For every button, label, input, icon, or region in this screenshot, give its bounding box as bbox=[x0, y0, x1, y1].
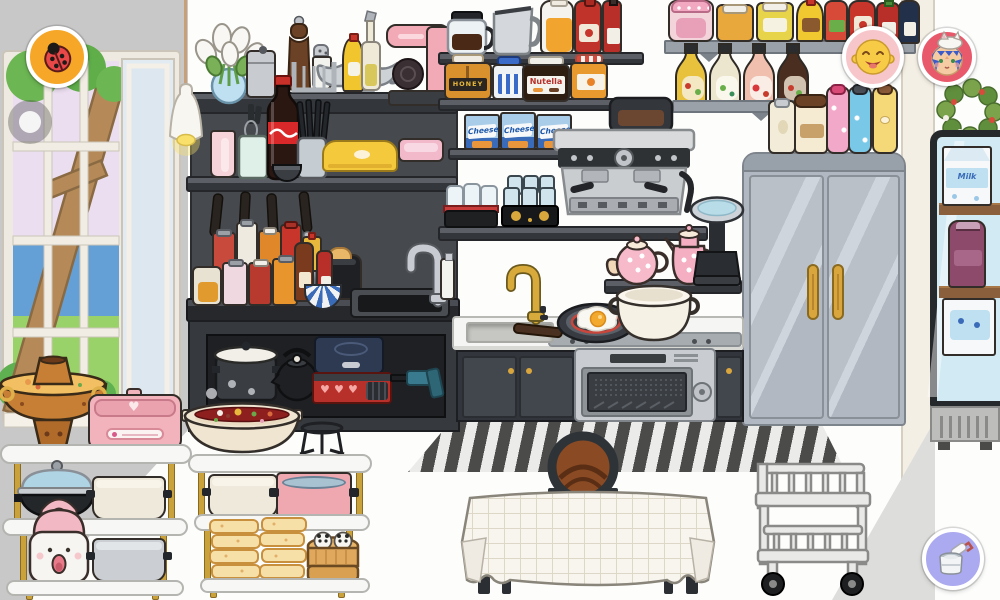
fridge-top-band bbox=[744, 154, 904, 172]
soap-pump[interactable] bbox=[440, 258, 455, 300]
vinegar-label bbox=[829, 20, 845, 32]
ketchup-label bbox=[579, 24, 599, 42]
honey-dipper bbox=[466, 66, 469, 78]
milk-carton[interactable]: Milk bbox=[942, 146, 992, 206]
ladybug-button[interactable] bbox=[26, 26, 88, 88]
carton2-dot bbox=[958, 318, 964, 324]
cream-thermos[interactable] bbox=[768, 100, 796, 154]
kitchen-scale[interactable] bbox=[690, 194, 744, 288]
honey-pot[interactable] bbox=[716, 4, 754, 42]
handle-groove bbox=[837, 274, 839, 310]
pink-jam-jar[interactable] bbox=[668, 0, 714, 42]
tumbler-lid bbox=[794, 94, 828, 108]
slider-line bbox=[122, 434, 158, 436]
kitchen-scene: Milk bbox=[0, 0, 1000, 600]
pot-water bbox=[282, 476, 346, 489]
pot-handle bbox=[163, 490, 172, 498]
caster-wheel bbox=[762, 573, 863, 595]
heart-icon: ♥ bbox=[348, 384, 358, 395]
oj-juice bbox=[546, 18, 572, 52]
rice-cooker[interactable] bbox=[24, 502, 94, 586]
carton-gable bbox=[944, 148, 990, 161]
espresso-machine[interactable] bbox=[548, 96, 700, 228]
lamp-cord bbox=[184, 0, 187, 86]
pink-multicooker[interactable]: ♥ bbox=[88, 394, 182, 450]
stock-pot[interactable] bbox=[212, 340, 280, 402]
milk-carton-2[interactable] bbox=[942, 298, 996, 356]
torch-handle bbox=[425, 367, 445, 399]
oil-jug[interactable] bbox=[192, 266, 222, 306]
egg-yolk bbox=[591, 312, 606, 327]
milk-label: Milk bbox=[946, 168, 988, 181]
butter-dish-yellow[interactable] bbox=[322, 140, 398, 172]
wire-stand[interactable] bbox=[298, 422, 346, 458]
honey-label: HONEY bbox=[449, 78, 487, 88]
hopper-window bbox=[618, 110, 664, 126]
pot-rim bbox=[96, 542, 162, 550]
kitchen-torch[interactable] bbox=[390, 366, 448, 400]
shelf-board bbox=[188, 454, 372, 473]
juice-cap bbox=[956, 222, 980, 231]
shelf-board bbox=[0, 444, 192, 464]
stove-side-vent bbox=[366, 382, 388, 400]
jug-contents bbox=[198, 282, 218, 302]
door-knob-gold bbox=[726, 368, 732, 374]
stove-top-strip bbox=[314, 374, 390, 381]
fridge-handle-left[interactable] bbox=[807, 264, 819, 320]
mustard-label bbox=[802, 18, 820, 32]
nutella-label-text: Nutella bbox=[527, 76, 565, 86]
cream-pot-2[interactable] bbox=[208, 474, 278, 518]
double-door-fridge[interactable] bbox=[742, 152, 906, 426]
cracker-art bbox=[472, 141, 492, 148]
pot-rim bbox=[212, 478, 274, 486]
bread-stack-2[interactable] bbox=[260, 518, 308, 584]
marmalade-jar[interactable] bbox=[570, 54, 608, 100]
carton-band: Milk bbox=[946, 168, 988, 188]
canister-lid-line bbox=[248, 62, 274, 64]
spice-jar[interactable] bbox=[222, 262, 248, 306]
dish-dot bbox=[354, 150, 370, 159]
honey-pot-lid bbox=[722, 4, 748, 14]
blue-bottle[interactable] bbox=[848, 86, 872, 154]
jar-lid bbox=[240, 219, 254, 227]
blue-hair-cat-hat-face-icon bbox=[925, 35, 969, 79]
oj-cap bbox=[550, 0, 568, 7]
paint-bucket-roller-icon bbox=[933, 539, 973, 579]
hot-sauce-bottle[interactable] bbox=[602, 0, 622, 54]
coffee-maker-carafe bbox=[392, 58, 424, 90]
soy-label bbox=[904, 22, 916, 36]
pink-bottle[interactable] bbox=[826, 86, 850, 154]
burner-dot bbox=[706, 339, 711, 344]
heart-icon: ♥ bbox=[334, 384, 344, 395]
jar-lid bbox=[228, 259, 244, 267]
carton2-art bbox=[950, 310, 990, 340]
cooler-foot bbox=[980, 442, 992, 450]
tumbler-band bbox=[800, 124, 824, 138]
grape-juice-bottle[interactable] bbox=[948, 220, 986, 288]
serving-cart[interactable] bbox=[748, 460, 878, 600]
vinegar-bottle[interactable] bbox=[824, 0, 848, 42]
hot-sauce-label bbox=[607, 28, 620, 44]
dining-table[interactable] bbox=[456, 468, 722, 600]
bread-stack-1[interactable] bbox=[208, 520, 262, 584]
hot-sauce-cap bbox=[609, 0, 618, 6]
fridge-handle-right[interactable] bbox=[832, 264, 844, 320]
multicooker-slider[interactable] bbox=[106, 428, 164, 440]
honey-label-band: HONEY bbox=[449, 78, 487, 91]
pump-top bbox=[445, 253, 453, 261]
cat-hat bbox=[938, 32, 962, 49]
carton2-dot bbox=[974, 322, 980, 328]
cheese-label: Cheese bbox=[468, 124, 496, 136]
cheese-banner: Cheese bbox=[468, 124, 496, 139]
canister-knob bbox=[259, 46, 267, 54]
cracker-art bbox=[508, 141, 528, 148]
bamboo-steamer-pandas[interactable] bbox=[306, 534, 360, 584]
cabinet-door[interactable] bbox=[716, 356, 742, 418]
juice-label bbox=[954, 250, 982, 266]
marmalade-body bbox=[570, 62, 608, 100]
arm-stripe bbox=[398, 34, 424, 39]
pink-cup[interactable] bbox=[210, 130, 236, 178]
thermos-lid bbox=[774, 98, 790, 108]
jar-cap bbox=[308, 232, 316, 240]
cooler-base bbox=[930, 406, 1000, 442]
carton-snow-dot bbox=[974, 196, 979, 201]
bowl-rim bbox=[274, 166, 300, 170]
steam-dot bbox=[206, 388, 217, 399]
heart-icon: ♥ bbox=[128, 401, 140, 414]
cheese-box-1[interactable]: Cheese bbox=[464, 114, 500, 150]
profile-blue-button[interactable] bbox=[918, 28, 976, 86]
honey-pot-2-label bbox=[763, 18, 787, 32]
pot-rim bbox=[96, 480, 162, 488]
marmalade-label bbox=[577, 74, 605, 90]
chili-cap bbox=[884, 0, 894, 7]
cabinet-door[interactable] bbox=[519, 356, 574, 418]
steam-dot bbox=[228, 380, 236, 388]
soup-pot[interactable] bbox=[610, 278, 698, 344]
pink-coffee-maker[interactable] bbox=[386, 24, 452, 106]
bear-face bbox=[880, 116, 890, 124]
jam-content bbox=[676, 18, 706, 38]
cream-pot[interactable] bbox=[92, 476, 166, 520]
induction-buttons bbox=[342, 362, 360, 368]
dot-icon bbox=[19, 111, 41, 133]
pot-handle bbox=[202, 488, 211, 496]
nutella-art bbox=[533, 88, 543, 92]
jar-lid bbox=[253, 259, 269, 267]
mustard-cap bbox=[806, 0, 816, 6]
carton-snow-dot bbox=[952, 194, 957, 199]
honey-jar[interactable]: HONEY bbox=[444, 54, 492, 100]
yellow-bottle[interactable] bbox=[872, 86, 898, 154]
paint-button[interactable] bbox=[922, 528, 984, 590]
cabinet-door[interactable] bbox=[462, 356, 517, 418]
blue-jar-stripes bbox=[498, 74, 522, 94]
jam-cloth-lid bbox=[671, 0, 711, 13]
mustard-squeeze[interactable] bbox=[796, 0, 824, 42]
carafe-ring bbox=[400, 66, 416, 82]
pink-bottle-lid bbox=[830, 84, 846, 95]
shelf-board bbox=[200, 578, 370, 593]
pot-handle bbox=[349, 488, 359, 497]
glass-set-red-tray[interactable] bbox=[444, 182, 500, 230]
oil-bottle[interactable] bbox=[360, 12, 382, 94]
gas-stove[interactable]: ♥ ♥ ♥ bbox=[312, 372, 392, 404]
nutella-art bbox=[549, 88, 559, 92]
ladybug-icon bbox=[37, 37, 77, 77]
profile-yellow-button[interactable] bbox=[842, 26, 904, 88]
steam-dot bbox=[248, 388, 255, 395]
honey-pot-2[interactable] bbox=[756, 2, 794, 42]
nav-dot-button[interactable] bbox=[8, 100, 52, 144]
shelf-board bbox=[6, 580, 184, 596]
orange-dot bbox=[587, 78, 595, 86]
induction-ring bbox=[334, 342, 368, 356]
pot-handle bbox=[163, 552, 172, 560]
door-knob-gold bbox=[508, 368, 514, 374]
pendant-lamp bbox=[162, 82, 210, 156]
jar-lid bbox=[263, 227, 277, 235]
slider-dot bbox=[112, 432, 117, 437]
tray-top bbox=[404, 143, 438, 152]
induction-cooktop[interactable] bbox=[314, 336, 384, 374]
pot-handle bbox=[269, 488, 279, 497]
metal-pitcher[interactable] bbox=[486, 0, 542, 56]
ketchup-bottle[interactable] bbox=[574, 0, 602, 54]
divided-hotpot[interactable] bbox=[182, 402, 302, 460]
blue-jam-jar[interactable] bbox=[492, 56, 526, 100]
jar-lid bbox=[278, 255, 294, 263]
cheese-label: Cheese bbox=[504, 123, 532, 135]
cooler-foot bbox=[938, 442, 950, 450]
handle-groove bbox=[812, 274, 814, 310]
pot-handle bbox=[86, 552, 95, 560]
cheese-box-2[interactable]: Cheese bbox=[500, 112, 536, 150]
blue-jar-body bbox=[492, 64, 526, 100]
heart-icon: ♥ bbox=[320, 384, 330, 395]
honey-body: HONEY bbox=[444, 62, 492, 100]
dish-scallop bbox=[328, 164, 392, 168]
mustard-bottle-label bbox=[348, 62, 360, 76]
spice-jar[interactable] bbox=[248, 262, 272, 306]
door-knob-gold bbox=[526, 368, 532, 374]
lamp-bulb bbox=[177, 135, 195, 146]
jar-lid bbox=[284, 221, 298, 229]
coffee-tumbler[interactable] bbox=[794, 98, 828, 154]
cooler-vents bbox=[940, 416, 994, 438]
gray-pot[interactable] bbox=[92, 538, 166, 582]
honey-pot-2-lid bbox=[762, 2, 788, 12]
cup-stripe bbox=[221, 138, 229, 172]
mustard-bottle-cap bbox=[349, 33, 359, 42]
ketchup-cap bbox=[584, 0, 596, 7]
thermos-badge bbox=[778, 120, 788, 134]
jar-lid bbox=[216, 229, 232, 237]
tomato-dot bbox=[585, 29, 593, 37]
yellow-laughing-face-icon bbox=[851, 35, 895, 79]
orange-juice-bottle[interactable] bbox=[540, 0, 574, 54]
soy-sauce-bottle[interactable] bbox=[898, 0, 920, 44]
pink-tray[interactable] bbox=[398, 138, 444, 162]
oven[interactable] bbox=[574, 348, 716, 422]
tablecloth bbox=[462, 492, 714, 585]
cheese-banner: Cheese bbox=[504, 123, 532, 138]
pot-handle bbox=[86, 490, 95, 498]
nutella-label: Nutella bbox=[527, 76, 565, 94]
